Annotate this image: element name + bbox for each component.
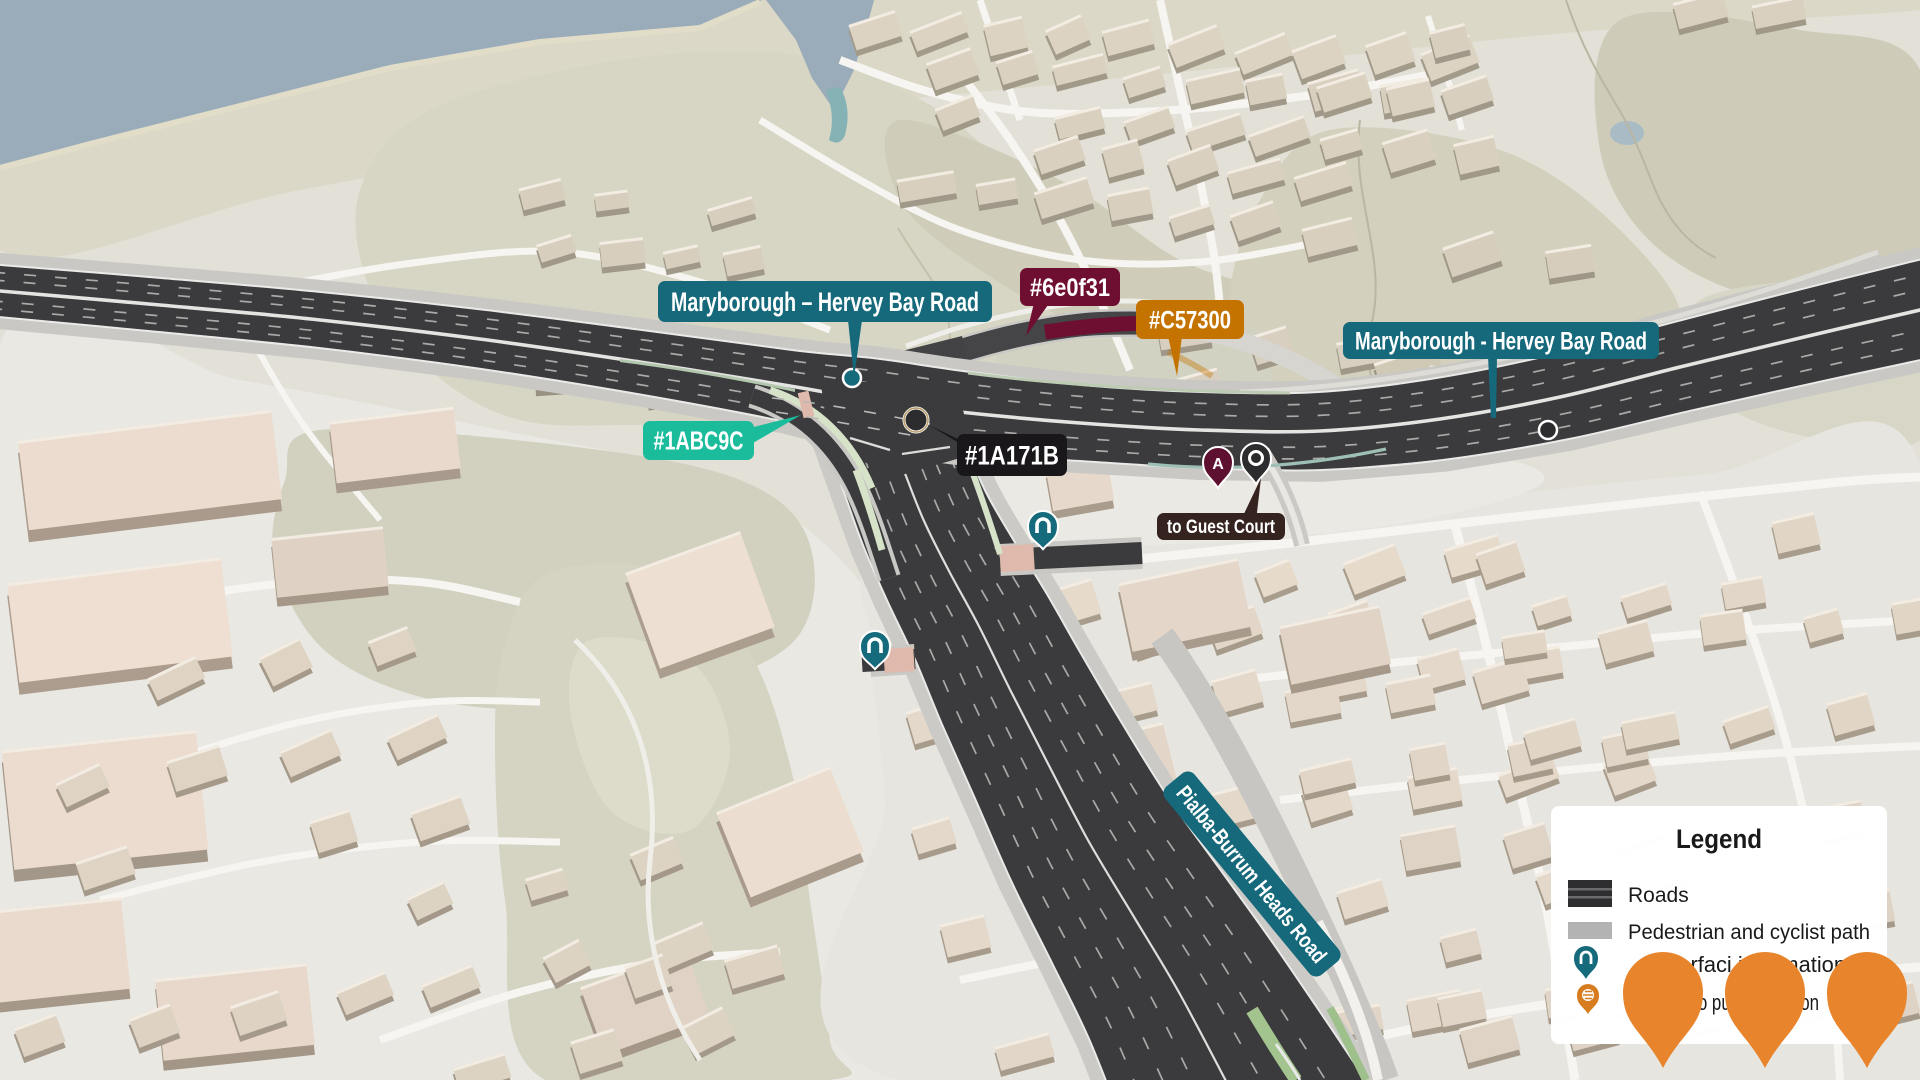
svg-text:#6e0f31: #6e0f31 xyxy=(1030,274,1110,302)
svg-text:#1A171B: #1A171B xyxy=(965,440,1059,470)
svg-text:Legend: Legend xyxy=(1676,824,1762,854)
svg-text:Maryborough – Hervey Bay Road: Maryborough – Hervey Bay Road xyxy=(671,287,979,317)
svg-text:A: A xyxy=(1212,456,1224,473)
svg-text:Maryborough - Hervey Bay Road: Maryborough - Hervey Bay Road xyxy=(1355,327,1647,355)
svg-text:Roads: Roads xyxy=(1628,884,1689,907)
svg-text:#1ABC9C: #1ABC9C xyxy=(654,426,744,456)
svg-text:Pedestrian and cyclist path: Pedestrian and cyclist path xyxy=(1628,921,1870,944)
svg-text:to Guest Court: to Guest Court xyxy=(1167,517,1276,538)
svg-text:#C57300: #C57300 xyxy=(1149,306,1231,334)
